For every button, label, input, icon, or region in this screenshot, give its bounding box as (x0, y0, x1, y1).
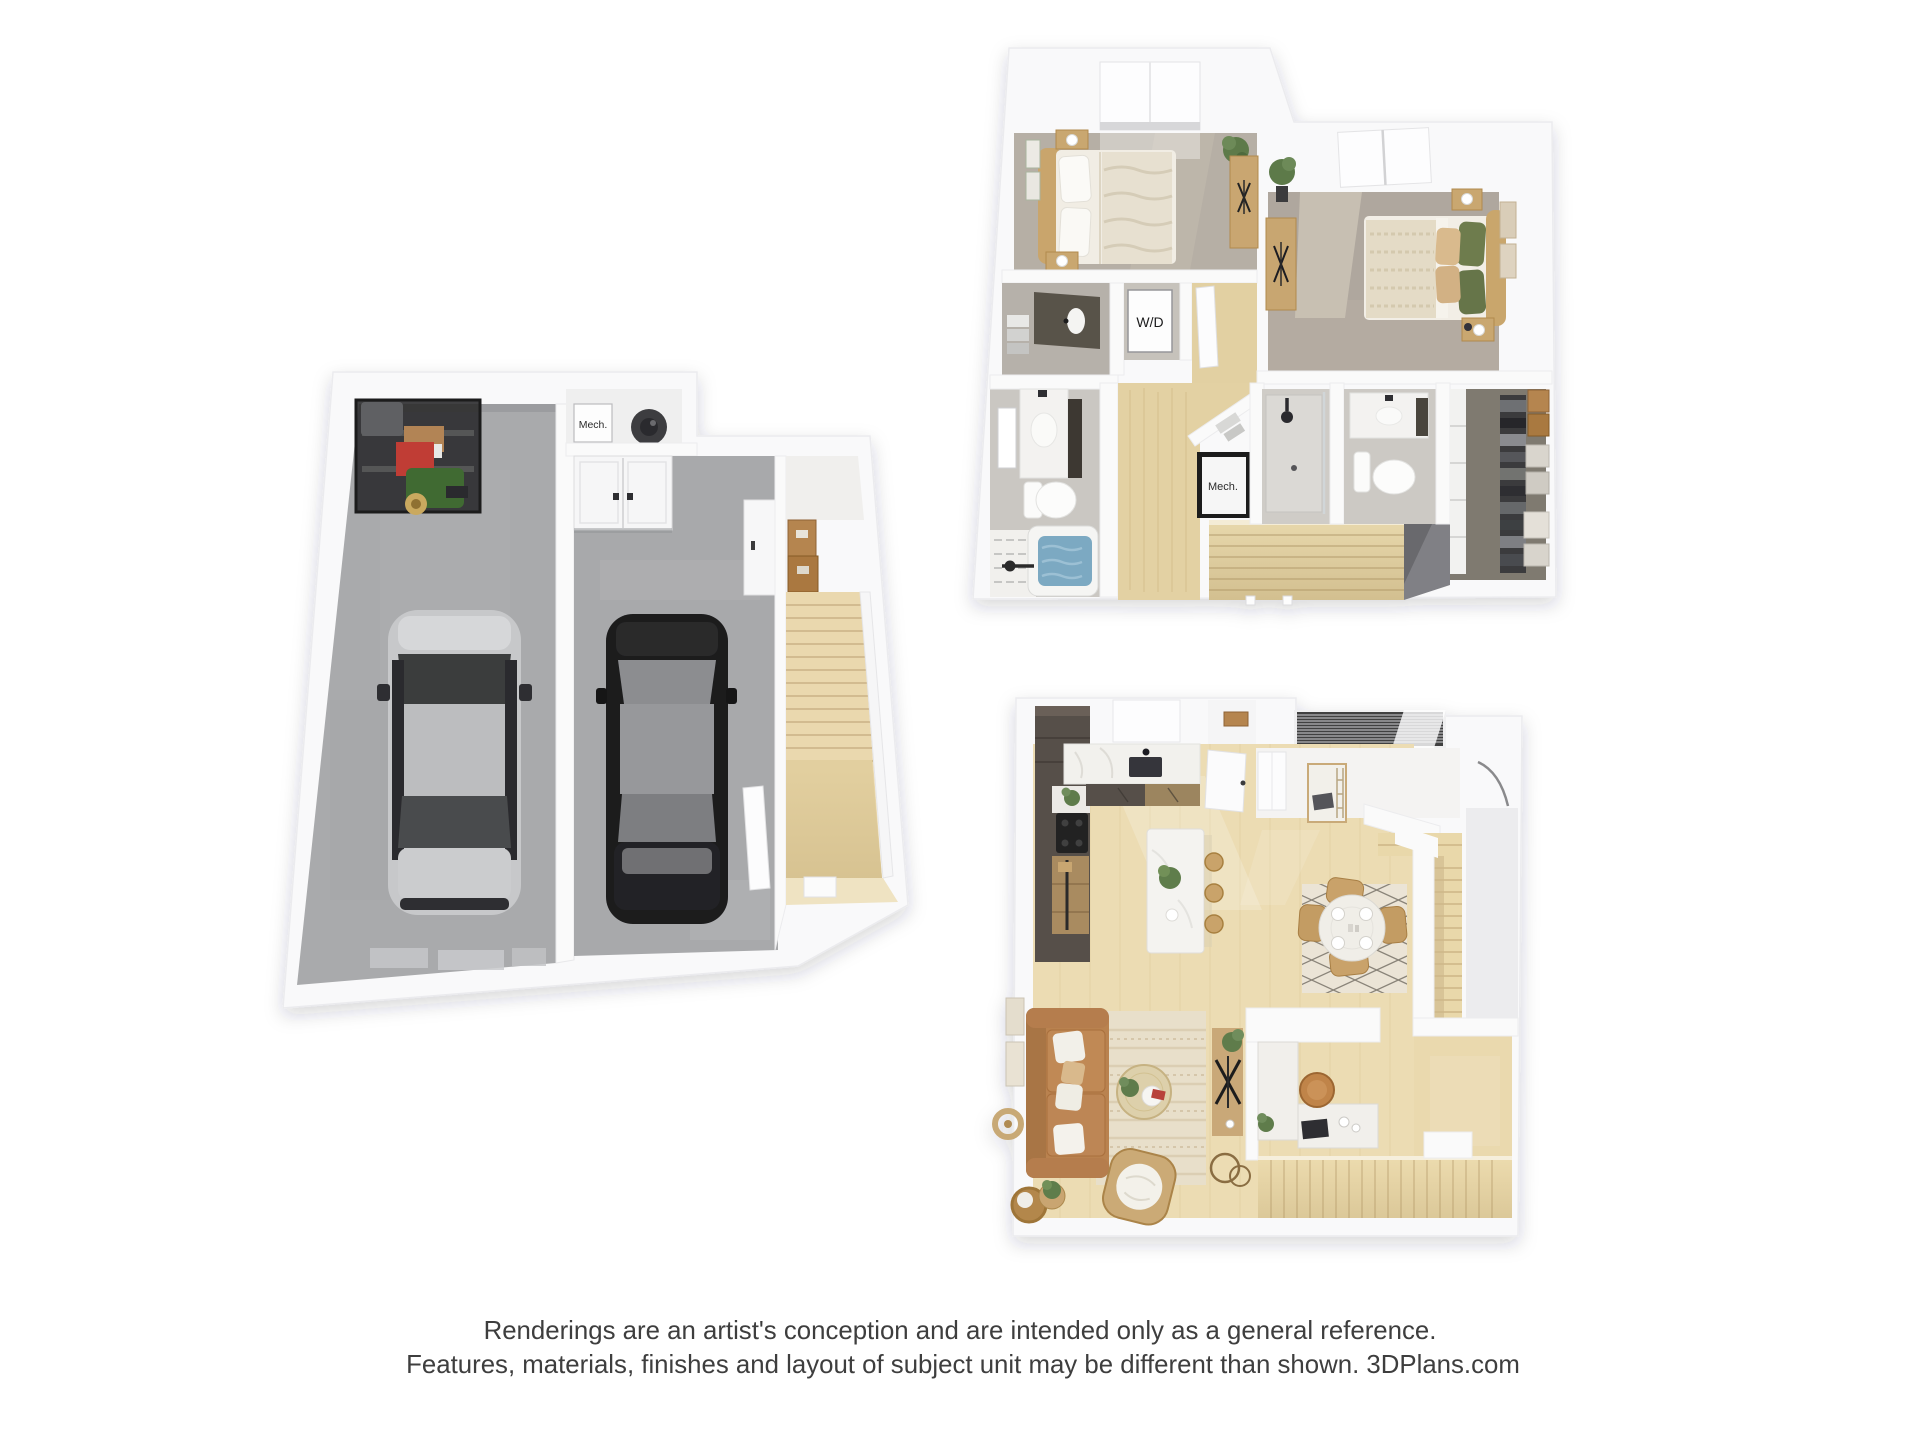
svg-text:Features, materials, finishes: Features, materials, finishes and layout… (406, 1351, 1520, 1379)
svg-text:W/D: W/D (1136, 314, 1163, 330)
svg-text:Mech.: Mech. (1208, 481, 1238, 493)
svg-text:Renderings are an artist's con: Renderings are an artist's conception an… (484, 1317, 1437, 1345)
svg-text:Mech.: Mech. (579, 419, 608, 431)
